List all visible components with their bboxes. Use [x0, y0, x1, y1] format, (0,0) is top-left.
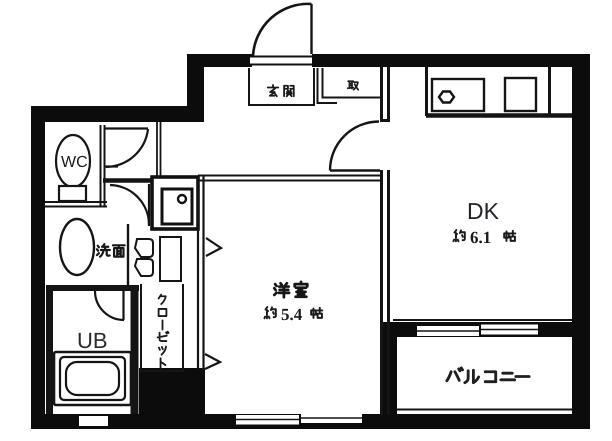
svg-text:5.4: 5.4 — [281, 305, 303, 324]
svg-text:WC: WC — [61, 154, 88, 171]
svg-text:UB: UB — [77, 328, 108, 353]
svg-text:6.1: 6.1 — [470, 228, 491, 247]
svg-text:DK: DK — [467, 198, 500, 224]
